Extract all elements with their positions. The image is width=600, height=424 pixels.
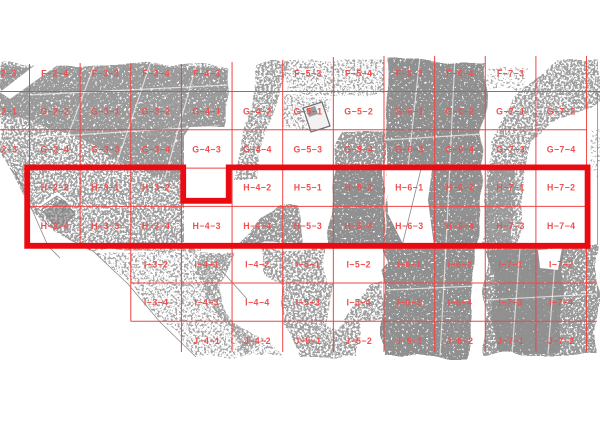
svg-text:I−7−1: I−7−1 (498, 259, 523, 269)
svg-text:F−6−3: F−6−3 (396, 69, 423, 79)
svg-text:G−2−2: G−2−2 (40, 106, 69, 116)
svg-text:G−3−2: G−3−2 (142, 106, 171, 116)
svg-text:I−4−3: I−4−3 (194, 298, 219, 308)
svg-text:I−4−2: I−4−2 (245, 259, 270, 269)
svg-text:J−7−1: J−7−1 (497, 336, 524, 346)
svg-text:G−4−3: G−4−3 (192, 145, 221, 155)
svg-text:H−6−2: H−6−2 (446, 183, 474, 193)
svg-text:H−7−2: H−7−2 (547, 183, 575, 193)
svg-text:H−6−1: H−6−1 (395, 183, 423, 193)
svg-text:H−5−1: H−5−1 (294, 183, 322, 193)
svg-text:G−3−4: G−3−4 (142, 145, 171, 155)
svg-text:H−7−1: H−7−1 (496, 183, 524, 193)
svg-text:H−4−4: H−4−4 (243, 221, 271, 231)
svg-text:H−3−3: H−3−3 (91, 221, 119, 231)
svg-text:G−5−4: G−5−4 (344, 145, 373, 155)
svg-text:F−3−3: F−3−3 (92, 69, 119, 79)
svg-text:I−5−2: I−5−2 (346, 259, 371, 269)
svg-text:G−3−1: G−3−1 (91, 106, 120, 116)
svg-text:G−2−1: G−2−1 (0, 106, 17, 116)
svg-text:J−4−2: J−4−2 (244, 336, 271, 346)
svg-text:G−5−1: G−5−1 (294, 106, 323, 116)
svg-text:I−6−2: I−6−2 (448, 259, 473, 269)
svg-text:H−2−4: H−2−4 (41, 221, 69, 231)
svg-text:G−7−4: G−7−4 (547, 145, 576, 155)
svg-text:H−4−3: H−4−3 (192, 221, 220, 231)
svg-text:H−3−4: H−3−4 (142, 221, 170, 231)
svg-text:I−4−4: I−4−4 (245, 298, 270, 308)
svg-text:H−7−3: H−7−3 (496, 221, 524, 231)
svg-text:G−5−2: G−5−2 (344, 106, 373, 116)
svg-text:F−2−4: F−2−4 (41, 69, 68, 79)
svg-text:F−2−3: F−2−3 (0, 69, 17, 79)
svg-text:I−7−3: I−7−3 (498, 298, 523, 308)
svg-text:H−7−4: H−7−4 (547, 221, 575, 231)
svg-text:H−5−3: H−5−3 (294, 221, 322, 231)
svg-text:I−3−2: I−3−2 (144, 259, 169, 269)
svg-text:J−6−1: J−6−1 (396, 336, 423, 346)
svg-text:G−7−3: G−7−3 (496, 145, 525, 155)
svg-text:J−4−1: J−4−1 (193, 336, 220, 346)
svg-text:F−4−3: F−4−3 (193, 69, 220, 79)
svg-text:G−6−2: G−6−2 (445, 106, 474, 116)
svg-text:H−3−2: H−3−2 (142, 183, 170, 193)
svg-text:I−5−4: I−5−4 (346, 298, 371, 308)
svg-text:I−6−3: I−6−3 (397, 298, 422, 308)
svg-text:G−4−2: G−4−2 (243, 106, 272, 116)
svg-text:H−5−2: H−5−2 (344, 183, 372, 193)
svg-text:G−4−1: G−4−1 (192, 106, 221, 116)
svg-text:J−5−2: J−5−2 (345, 336, 372, 346)
svg-text:G−3−3: G−3−3 (91, 145, 120, 155)
svg-text:I−6−4: I−6−4 (448, 298, 473, 308)
svg-text:I−7−2: I−7−2 (549, 259, 574, 269)
svg-text:I−5−3: I−5−3 (296, 298, 321, 308)
svg-text:G−7−2: G−7−2 (547, 106, 576, 116)
svg-text:H−2−2: H−2−2 (41, 183, 69, 193)
svg-text:H−6−4: H−6−4 (446, 221, 474, 231)
svg-text:H−4−2: H−4−2 (243, 183, 271, 193)
svg-text:F−5−4: F−5−4 (345, 69, 372, 79)
svg-text:I−6−1: I−6−1 (397, 259, 422, 269)
svg-text:F−6−4: F−6−4 (446, 69, 473, 79)
svg-text:F−7−3: F−7−3 (497, 69, 524, 79)
svg-text:G−6−4: G−6−4 (445, 145, 474, 155)
svg-text:G−4−4: G−4−4 (243, 145, 272, 155)
svg-text:J−6−2: J−6−2 (446, 336, 473, 346)
svg-text:H−5−4: H−5−4 (344, 221, 372, 231)
svg-text:J−7−2: J−7−2 (548, 336, 575, 346)
svg-text:G−2−4: G−2−4 (40, 145, 69, 155)
svg-text:G−5−3: G−5−3 (294, 145, 323, 155)
svg-text:G−6−1: G−6−1 (395, 106, 424, 116)
svg-text:F−3−4: F−3−4 (142, 69, 169, 79)
svg-text:J−5−1: J−5−1 (295, 336, 322, 346)
svg-text:G−7−1: G−7−1 (496, 106, 525, 116)
svg-text:H−6−3: H−6−3 (395, 221, 423, 231)
svg-text:G−2−3: G−2−3 (0, 145, 17, 155)
svg-text:F−5−3: F−5−3 (294, 69, 321, 79)
svg-text:I−7−4: I−7−4 (549, 298, 574, 308)
svg-text:G−6−3: G−6−3 (395, 145, 424, 155)
svg-text:H−3−1: H−3−1 (91, 183, 119, 193)
svg-text:I−4−1: I−4−1 (194, 259, 219, 269)
svg-text:I−5−1: I−5−1 (296, 259, 321, 269)
svg-text:I−3−4: I−3−4 (144, 298, 169, 308)
